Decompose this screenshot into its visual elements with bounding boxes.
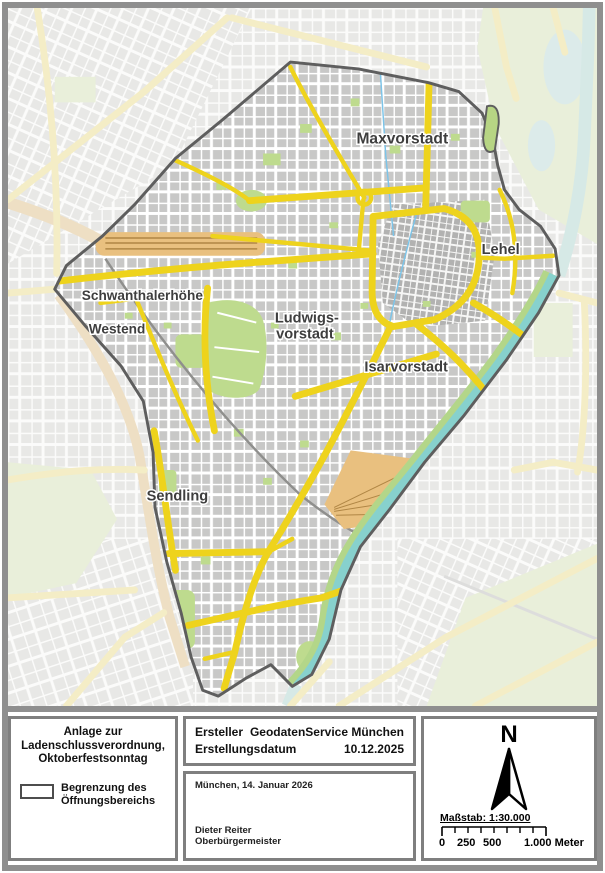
district-label-maxvorstadt: Maxvorstadt bbox=[356, 131, 448, 148]
creator-label: Ersteller bbox=[195, 725, 243, 739]
meta-column: Ersteller GeodatenService München Erstel… bbox=[183, 716, 416, 861]
document-title-line2: Ladenschlussverordnung, bbox=[11, 740, 175, 754]
scale-tick-500: 500 bbox=[483, 837, 501, 849]
legend-label: Begrenzung des Öffnungsbereichs bbox=[61, 782, 155, 808]
district-label-isarvorstadt: Isarvorstadt bbox=[364, 360, 448, 376]
info-panel: Anlage zur Ladenschlussverordnung, Oktob… bbox=[8, 712, 597, 865]
scale-bar-icon bbox=[440, 826, 552, 837]
legend-label-line2: Öffnungsbereichs bbox=[61, 795, 155, 808]
creation-date-row: Erstellungsdatum 10.12.2025 bbox=[195, 742, 404, 756]
district-label-sendling: Sendling bbox=[147, 488, 209, 504]
district-label-ludwigsvorstadt-line1: Ludwigs- bbox=[275, 311, 339, 327]
scale-tick-250: 250 bbox=[457, 837, 475, 849]
scale-tick-labels: 0 250 500 1.000 Meter bbox=[440, 837, 598, 850]
district-label-lehel: Lehel bbox=[482, 242, 520, 258]
scale-tick-0: 0 bbox=[439, 837, 445, 849]
scale-label: Maßstab: 1:30.000 bbox=[440, 812, 598, 824]
compass-scale-box: N Maßstab: 1:30.000 0 250 bbox=[421, 716, 597, 861]
map-canvas: Maxvorstadt Lehel Schwanthalerhöhe Weste… bbox=[8, 8, 597, 706]
scale-tick-end: 1.000 Meter bbox=[524, 837, 584, 849]
scale-block: Maßstab: 1:30.000 0 250 500 1.000 Meter bbox=[440, 812, 598, 850]
creator-row: Ersteller GeodatenService München bbox=[195, 725, 404, 739]
legend-item: Begrenzung des Öffnungsbereichs bbox=[20, 782, 169, 808]
title-legend-box: Anlage zur Ladenschlussverordnung, Oktob… bbox=[8, 716, 178, 861]
document-title-line3: Oktoberfestsonntag bbox=[11, 753, 175, 767]
document-title-line1: Anlage zur bbox=[11, 726, 175, 740]
legend-label-line1: Begrenzung des bbox=[61, 782, 155, 795]
creator-box: Ersteller GeodatenService München Erstel… bbox=[183, 716, 416, 766]
signature-name: Dieter Reiter bbox=[195, 825, 404, 836]
creation-date-value: 10.12.2025 bbox=[344, 742, 404, 756]
hauptbahnhof-tracks bbox=[96, 232, 265, 256]
page-frame: Maxvorstadt Lehel Schwanthalerhöhe Weste… bbox=[2, 2, 603, 871]
map-document-page: Maxvorstadt Lehel Schwanthalerhöhe Weste… bbox=[0, 0, 605, 873]
district-label-ludwigsvorstadt-line2: vorstadt bbox=[276, 326, 334, 342]
boundary-sliver bbox=[483, 106, 499, 152]
boundary-legend-swatch bbox=[20, 784, 54, 799]
signature-block: Dieter Reiter Oberbürgermeister bbox=[195, 825, 404, 851]
map-area: Maxvorstadt Lehel Schwanthalerhöhe Weste… bbox=[8, 8, 597, 712]
district-label-westend: Westend bbox=[89, 321, 146, 336]
creator-value: GeodatenService München bbox=[250, 725, 404, 739]
signature-box: München, 14. Januar 2026 Dieter Reiter O… bbox=[183, 771, 416, 861]
creation-date-label: Erstellungsdatum bbox=[195, 742, 296, 756]
district-label-schwanthalerhoehe: Schwanthalerhöhe bbox=[82, 288, 203, 303]
north-label: N bbox=[424, 723, 594, 747]
north-arrow: N bbox=[424, 723, 594, 818]
place-date: München, 14. Januar 2026 bbox=[195, 780, 404, 791]
signature-title: Oberbürgermeister bbox=[195, 836, 404, 847]
document-title: Anlage zur Ladenschlussverordnung, Oktob… bbox=[11, 726, 175, 767]
north-arrow-icon bbox=[486, 747, 532, 813]
